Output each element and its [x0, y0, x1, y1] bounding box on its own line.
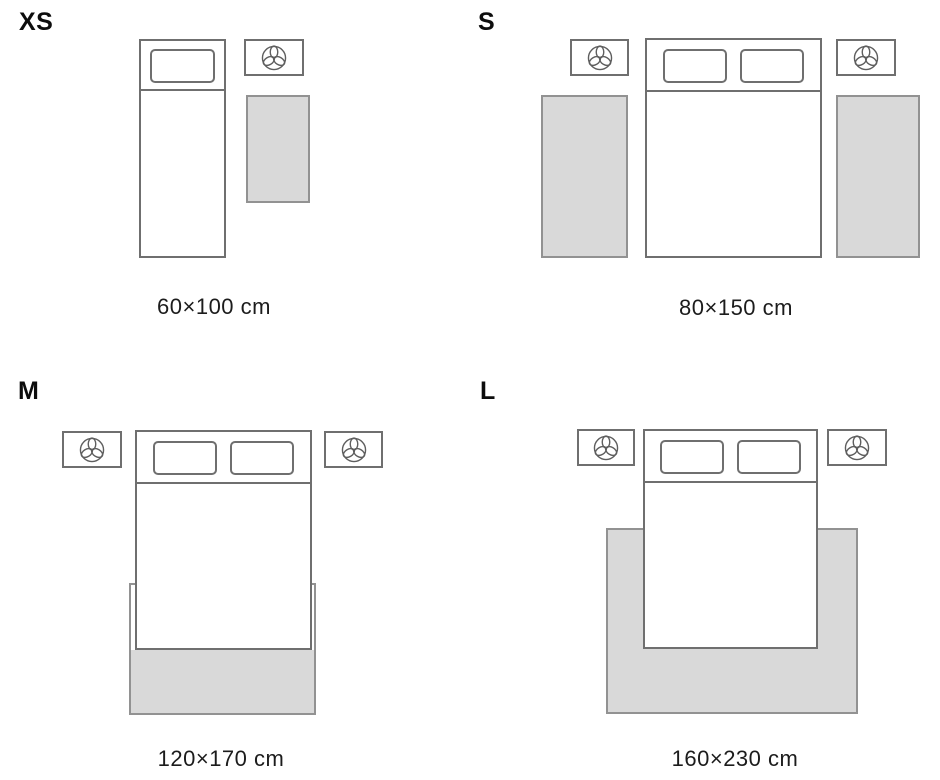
bed-headboard	[647, 40, 820, 92]
bed-headboard	[137, 432, 310, 484]
lamp-icon	[260, 44, 288, 72]
rug-exposed-area	[131, 650, 314, 713]
nightstand-right	[827, 429, 887, 466]
rug-s-right	[836, 95, 920, 258]
size-caption-m: 120×170 cm	[71, 745, 371, 773]
bed-single	[139, 39, 226, 258]
size-label-xs: XS	[19, 8, 53, 36]
lamp-icon	[852, 44, 880, 72]
size-caption-s: 80×150 cm	[586, 294, 886, 322]
lamp-icon	[340, 436, 368, 464]
size-label-l: L	[480, 377, 496, 405]
size-panel-m: M 120×170 cm	[0, 355, 470, 780]
nightstand	[244, 39, 304, 76]
bed-double	[645, 38, 822, 258]
size-caption-l: 160×230 cm	[585, 745, 885, 773]
nightstand-right	[836, 39, 896, 76]
nightstand-right	[324, 431, 383, 468]
bed-headboard	[645, 431, 816, 483]
pillow	[660, 440, 724, 474]
pillow	[230, 441, 294, 475]
nightstand-left	[62, 431, 122, 468]
bed-headboard	[141, 41, 224, 91]
size-caption-xs: 60×100 cm	[64, 293, 364, 321]
lamp-icon	[78, 436, 106, 464]
bed-double	[643, 429, 818, 649]
pillow	[740, 49, 804, 83]
bed-double	[135, 430, 312, 650]
rug-size-guide-diagram: XS 60×100 cm S	[0, 0, 940, 780]
size-label-s: S	[478, 8, 495, 36]
size-panel-s: S 80×150 cm	[470, 0, 940, 355]
size-panel-xs: XS 60×100 cm	[0, 0, 470, 355]
nightstand-left	[570, 39, 629, 76]
lamp-icon	[592, 434, 620, 462]
nightstand-left	[577, 429, 635, 466]
size-label-m: M	[18, 377, 39, 405]
lamp-icon	[843, 434, 871, 462]
lamp-icon	[586, 44, 614, 72]
rug-s-left	[541, 95, 628, 258]
size-panel-l: L 160×230 cm	[470, 355, 940, 780]
rug-xs	[246, 95, 310, 203]
pillow	[153, 441, 217, 475]
pillow	[663, 49, 727, 83]
pillow	[737, 440, 801, 474]
pillow	[150, 49, 215, 83]
